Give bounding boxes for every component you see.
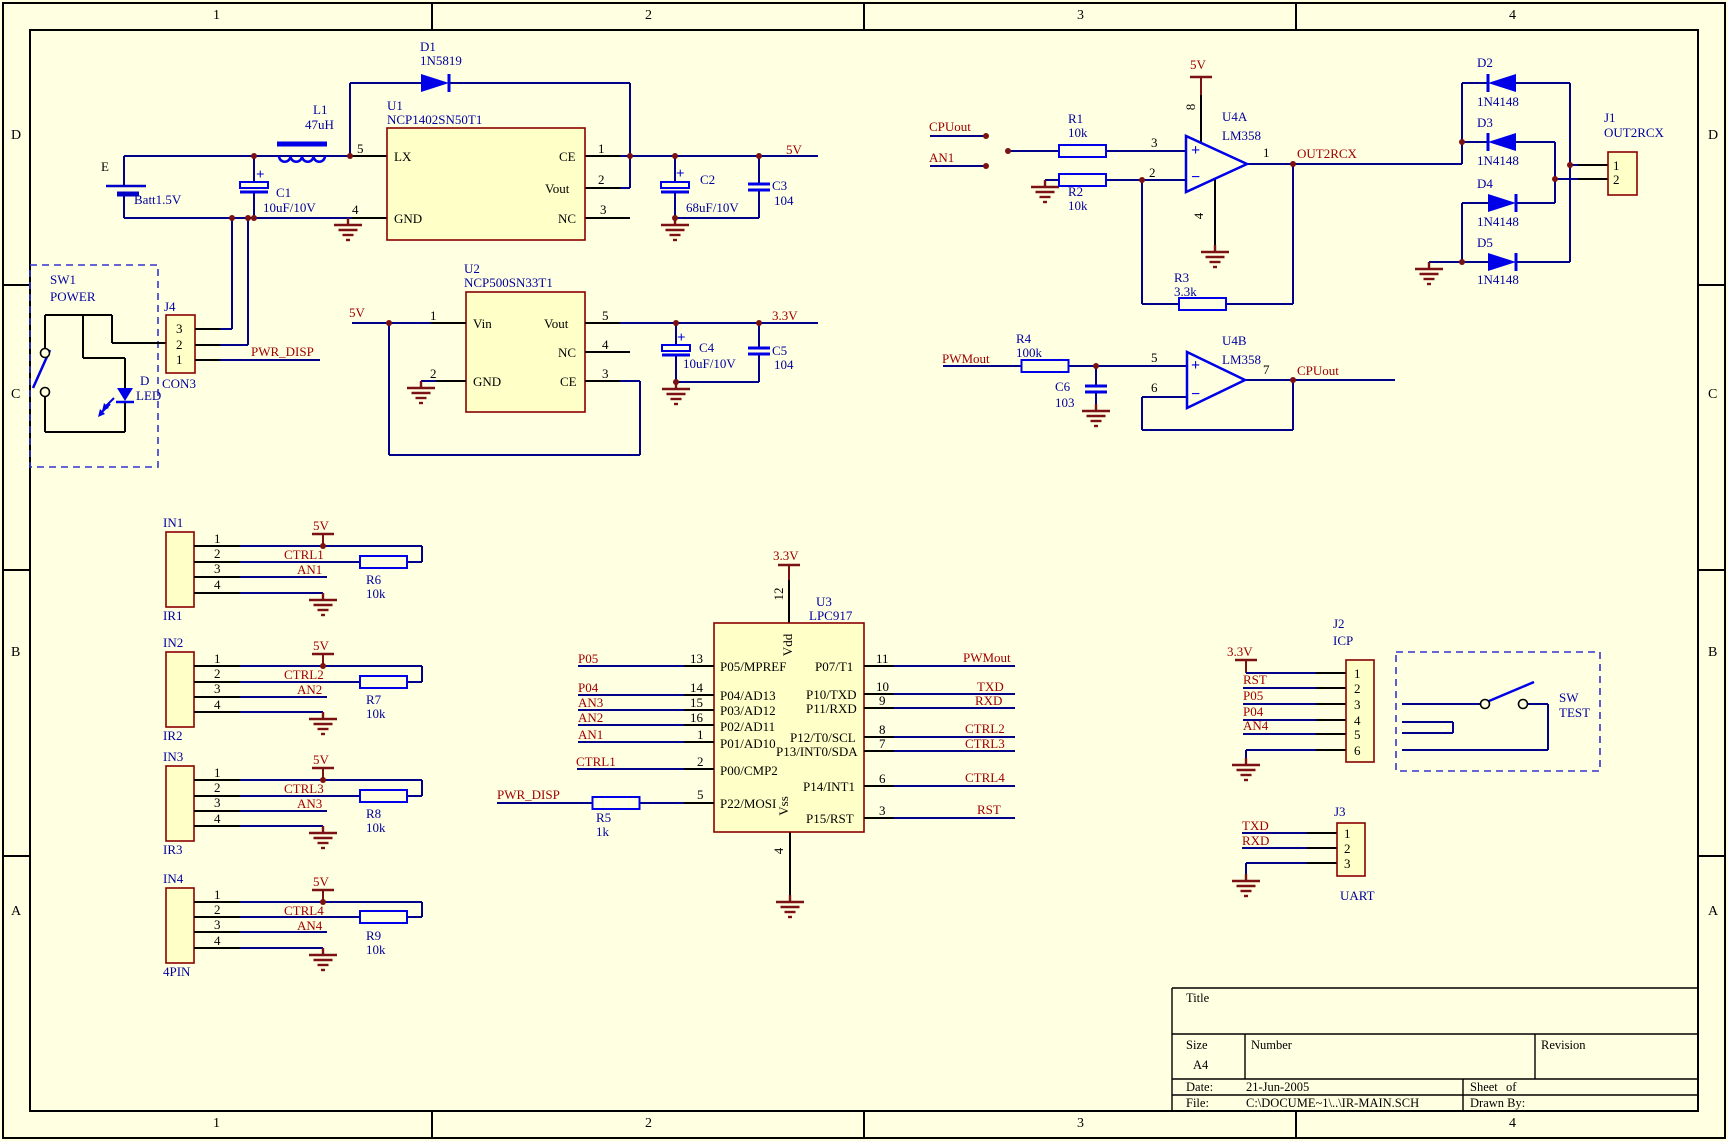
label-an3: AN3 [578,695,603,711]
resistor-r9[interactable] [360,911,407,923]
label-pwr-disp: PWR_DISP [497,787,560,803]
label-an1: AN1 [578,727,603,743]
label-u4b: U4B [1222,333,1247,349]
label--: − [1191,386,1200,404]
label-5: 5 [1151,350,1158,366]
label-1: 1 [214,887,221,903]
label-6: 6 [879,771,886,787]
label-j4: J4 [164,299,176,315]
label-lm358: LM358 [1222,128,1261,144]
label--: + [1191,142,1200,160]
label-an1: AN1 [297,562,322,578]
cap-c4[interactable] [662,345,690,355]
label-b: B [11,645,20,661]
label--: + [676,166,685,183]
label-1: 1 [214,531,221,547]
label-2: 2 [1354,681,1361,697]
titleblock-size-label: Size [1186,1039,1208,1052]
label-d5: D5 [1477,235,1493,251]
label-1n5819: 1N5819 [420,53,462,69]
label-1n4148: 1N4148 [1477,153,1519,169]
label-1n4148: 1N4148 [1477,272,1519,288]
label-10k: 10k [366,942,386,958]
diode-d4[interactable] [1488,194,1516,212]
label-p13-int0-sda: P13/INT0/SDA [776,744,858,760]
titleblock-revision-label: Revision [1541,1039,1585,1052]
j4-stubs [195,329,220,360]
label-4: 4 [214,933,221,949]
label-cpuout: CPUout [1297,363,1339,379]
titleblock-size-value: A4 [1193,1059,1208,1072]
label-2: 2 [1149,165,1156,181]
label-a: A [11,904,21,920]
label-c6: C6 [1055,379,1070,395]
in1-connector-body[interactable] [166,532,194,607]
label-2: 2 [1613,172,1620,188]
resistor-r6[interactable] [360,556,407,568]
label-l1: L1 [313,102,327,118]
label-13: 13 [690,651,703,667]
label-batt1.5v: Batt1.5V [134,192,181,208]
label-1: 1 [176,352,183,368]
label-lm358: LM358 [1222,352,1261,368]
label-c: C [11,387,20,403]
label-1k: 1k [596,824,609,840]
titleblock-title-label: Title [1186,992,1209,1005]
label-4: 4 [214,811,221,827]
label-3.3v: 3.3V [772,308,798,324]
label-10k: 10k [1068,125,1088,141]
sw1-switch[interactable] [33,349,50,397]
label-uart: UART [1340,888,1375,904]
label-2: 2 [214,546,221,562]
label-ctrl2: CTRL2 [284,667,324,683]
label-ncp1402sn50t1: NCP1402SN50T1 [387,112,482,128]
label-10uf-10v: 10uF/10V [263,200,316,216]
label-3: 3 [879,803,886,819]
resistor-r1[interactable] [1059,145,1106,157]
titleblock-file-value: C:\DOCUME~1\..\IR-MAIN.SCH [1246,1097,1419,1110]
label-ncp500sn33t1: NCP500SN33T1 [464,275,553,291]
label-ce: CE [559,149,576,165]
label-5v: 5V [349,305,365,321]
gnd-symbol [334,218,362,240]
label-d2: D2 [1477,55,1493,71]
label-12: 12 [771,588,787,601]
titleblock-sheet-label: Sheet [1470,1081,1498,1094]
label-4: 4 [214,577,221,593]
label-4: 4 [1509,1116,1516,1132]
label-9: 9 [879,693,886,709]
label--: + [677,330,686,347]
label-10k: 10k [1068,198,1088,214]
label-15: 15 [690,695,703,711]
resistor-r7[interactable] [360,676,407,688]
label-vss: Vss [776,796,792,816]
label-p04-ad13: P04/AD13 [720,688,776,704]
label-4: 4 [214,697,221,713]
label-p11-rxd: P11/RXD [806,701,857,717]
label-p05: P05 [1243,688,1263,704]
label-vdd: Vdd [780,634,796,656]
label-14: 14 [690,680,703,696]
label-icp: ICP [1333,633,1353,649]
label-4: 4 [771,848,787,855]
titleblock-of-label: of [1506,1081,1516,1094]
label-10uf-10v: 10uF/10V [683,356,736,372]
label-3: 3 [214,795,221,811]
label-1: 1 [430,308,437,324]
label-in1: IN1 [163,515,183,531]
label-an1: AN1 [929,150,954,166]
label-2: 2 [176,337,183,353]
label-1: 1 [1263,145,1270,161]
label-an4: AN4 [297,918,322,934]
label-2: 2 [214,780,221,796]
label-4: 4 [602,337,609,353]
label-1: 1 [213,8,220,24]
cap-c5[interactable] [748,348,770,354]
label-p02-ad11: P02/AD11 [720,719,775,735]
label-nc: NC [558,345,576,361]
label-ctrl2: CTRL2 [965,721,1005,737]
gnd-symbol [661,218,689,240]
resistor-r5[interactable] [593,797,640,809]
label-5: 5 [602,308,609,324]
label-j2: J2 [1333,616,1345,632]
label-ir2: IR2 [163,728,183,744]
label-4: 4 [1509,8,1516,24]
label-in2: IN2 [163,635,183,651]
label-1: 1 [1354,666,1361,682]
label--: + [256,167,265,184]
label-3.3k: 3.3k [1174,284,1197,300]
diode-d5[interactable] [1488,253,1516,271]
label-d3: D3 [1477,115,1493,131]
label-c1: C1 [276,185,291,201]
gnd-symbol [1082,404,1110,426]
label-a: A [1708,904,1718,920]
inductor-l1[interactable] [277,144,327,162]
titleblock-date-value: 21-Jun-2005 [1246,1081,1309,1094]
label-lx: LX [394,149,411,165]
label-gnd: GND [394,211,422,227]
label-47uh: 47uH [305,117,334,133]
label-pwr-disp: PWR_DISP [251,344,314,360]
label-ctrl4: CTRL4 [965,770,1005,786]
diode-d3[interactable] [1488,133,1516,151]
diode-d2[interactable] [1488,74,1516,92]
label-in3: IN3 [163,749,183,765]
resistor-r8[interactable] [360,790,407,802]
label-out2rcx: OUT2RCX [1297,146,1357,162]
label-103: 103 [1055,395,1075,411]
label-d: D [11,128,21,144]
label-3: 3 [600,202,607,218]
label-ctrl4: CTRL4 [284,903,324,919]
label-104: 104 [774,193,794,209]
label-3: 3 [214,917,221,933]
titleblock-drawnby-label: Drawn By: [1470,1097,1525,1110]
label-txd: TXD [1242,818,1269,834]
label-nc: NC [558,211,576,227]
label-p22-mosi: P22/MOSI [720,796,776,812]
label-2: 2 [214,666,221,682]
titleblock-date-label: Date: [1186,1081,1213,1094]
label-sw1: SW1 [50,272,76,288]
label-pwmout: PWMout [963,650,1011,666]
label-an4: AN4 [1243,718,1268,734]
label-out2rcx: OUT2RCX [1604,125,1664,141]
label-4: 4 [1191,213,1207,220]
label-2: 2 [214,902,221,918]
label-pwmout: PWMout [942,351,990,367]
label-3: 3 [1151,135,1158,151]
label-2: 2 [430,366,437,382]
label-p01-ad10: P01/AD10 [720,736,776,752]
label-1: 1 [213,1116,220,1132]
label-j3: J3 [1334,804,1346,820]
label-rst: RST [1243,672,1267,688]
label-p03-ad12: P03/AD12 [720,703,776,719]
label-u4a: U4A [1222,109,1247,125]
label-100k: 100k [1016,345,1042,361]
label-3: 3 [214,681,221,697]
label-ctrl1: CTRL1 [284,547,324,563]
label-3.3v: 3.3V [773,548,799,564]
label-c4: C4 [699,340,714,356]
label-5: 5 [357,141,364,157]
diode-d1[interactable] [421,74,449,92]
label-5v: 5V [313,518,329,534]
label-rxd: RXD [1242,833,1269,849]
label-lpc917: LPC917 [809,608,852,624]
label-sw: SW [1559,690,1579,706]
label-vout: Vout [544,316,568,332]
label-2: 2 [645,8,652,24]
label-16: 16 [690,710,703,726]
label-2: 2 [645,1116,652,1132]
label-ctrl3: CTRL3 [284,781,324,797]
label-ir3: IR3 [163,842,183,858]
junction-dots [229,133,1573,905]
label-6: 6 [1151,380,1158,396]
label-10k: 10k [366,820,386,836]
label-led: LED [136,388,161,404]
resistor-r4[interactable] [1022,360,1069,372]
label-test: TEST [1559,705,1590,721]
label-4: 4 [352,202,359,218]
in2-connector-body[interactable] [166,652,194,727]
label-3.3v: 3.3V [1227,644,1253,660]
schematic-sheet: 12341234DCBADCBAEBatt1.5VL147uHC110uF/10… [0,0,1728,1141]
label-d: D [140,373,149,389]
label-1n4148: 1N4148 [1477,214,1519,230]
label-8: 8 [1183,104,1199,111]
label-10k: 10k [366,706,386,722]
label-2: 2 [598,172,605,188]
label-an3: AN3 [297,796,322,812]
in4-connector-body[interactable] [166,888,194,963]
sw-test-blade[interactable] [1489,682,1534,701]
label-p05: P05 [578,651,598,667]
label-3: 3 [176,321,183,337]
label-1: 1 [697,727,704,743]
label-10k: 10k [366,586,386,602]
j1-stubs [1578,165,1608,179]
cap-c3[interactable] [748,184,770,190]
label-5: 5 [697,787,704,803]
label-in4: IN4 [163,871,183,887]
label-6: 6 [1354,743,1361,759]
label-p14-int1: P14/INT1 [803,779,855,795]
label-cpuout: CPUout [929,119,971,135]
label-2: 2 [1344,841,1351,857]
led-d[interactable] [98,388,134,417]
titleblock-file-label: File: [1186,1097,1209,1110]
label-104: 104 [774,357,794,373]
label-7: 7 [1263,362,1270,378]
label--: − [1191,169,1200,187]
label-e: E [101,159,109,175]
label-3: 3 [1354,697,1361,713]
label-1: 1 [214,765,221,781]
label-p05-mpref: P05/MPREF [720,659,786,675]
label-p00-cmp2: P00/CMP2 [720,763,778,779]
label-5v: 5V [313,874,329,890]
gnd-symbol [662,382,690,404]
label-1n4148: 1N4148 [1477,94,1519,110]
label-c3: C3 [772,178,787,194]
label-j1: J1 [1604,110,1616,126]
label-rxd: RXD [975,693,1002,709]
label-con3: CON3 [162,376,196,392]
cap-c2[interactable] [661,182,689,192]
label-p15-rst: P15/RST [806,811,854,827]
label-p04: P04 [578,680,598,696]
label-c: C [1708,387,1717,403]
label-1: 1 [598,141,605,157]
label-ctrl1: CTRL1 [576,754,616,770]
label-1: 1 [214,651,221,667]
label-3: 3 [602,366,609,382]
label-4pin: 4PIN [163,964,190,980]
gnd-symbol [1415,262,1443,284]
label-p07-t1: P07/T1 [815,659,853,675]
label-5: 5 [1354,727,1361,743]
label-2: 2 [697,754,704,770]
label-ce: CE [560,374,577,390]
label-b: B [1708,645,1717,661]
cap-c6[interactable] [1085,386,1107,392]
label-an2: AN2 [578,710,603,726]
j3-connector-body[interactable] [1337,823,1365,876]
label-68uf-10v: 68uF/10V [686,200,739,216]
in3-connector-body[interactable] [166,766,194,841]
label-5v: 5V [313,752,329,768]
label-gnd: GND [473,374,501,390]
gnd-symbol [407,381,435,403]
titleblock-number-label: Number [1251,1039,1292,1052]
label-1: 1 [1344,826,1351,842]
label-3: 3 [214,561,221,577]
label-5v: 5V [1190,57,1206,73]
label-vout: Vout [545,181,569,197]
label-d4: D4 [1477,176,1493,192]
label-ctrl3: CTRL3 [965,736,1005,752]
label-power: POWER [50,289,96,305]
label-rst: RST [977,802,1001,818]
label-11: 11 [876,651,889,667]
label-3: 3 [1077,1116,1084,1132]
label-5v: 5V [313,638,329,654]
label-7: 7 [879,736,886,752]
label-5v: 5V [786,142,802,158]
label--: + [1191,357,1200,375]
label-3: 3 [1077,8,1084,24]
j4-wires [220,218,320,360]
label-c2: C2 [700,172,715,188]
label-ir1: IR1 [163,608,183,624]
label-3: 3 [1344,856,1351,872]
label-vin: Vin [473,316,492,332]
label-d: D [1708,128,1718,144]
label-an2: AN2 [297,682,322,698]
